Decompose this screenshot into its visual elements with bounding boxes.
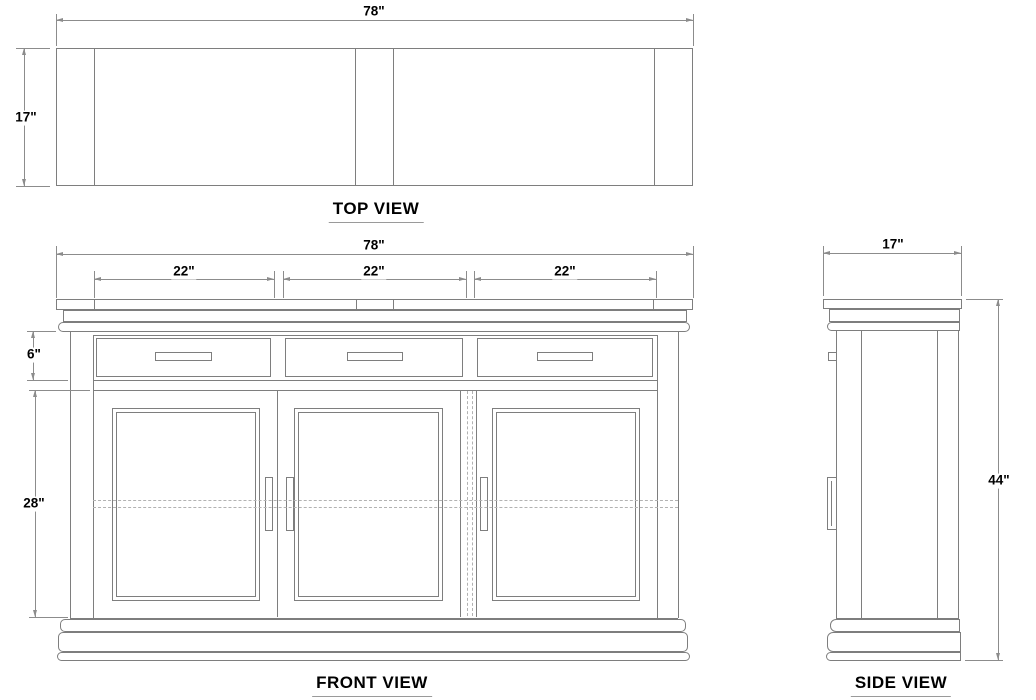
arrowhead-icon — [996, 653, 1000, 660]
front-base-step-2 — [58, 632, 688, 652]
body-right-edge — [678, 332, 679, 618]
dim-label-top-width: 78" — [361, 5, 386, 20]
dim-label-side-depth: 17" — [880, 238, 905, 253]
slab-joint-line — [356, 300, 357, 309]
side-back-edge — [958, 331, 959, 618]
extension-line — [693, 246, 694, 298]
extension-line — [474, 271, 475, 298]
side-base-step-1 — [830, 619, 960, 632]
slab-joint-line — [393, 300, 394, 309]
side-door-pull-detail — [831, 481, 832, 526]
dim-label-section-1: 22" — [171, 265, 196, 280]
arrowhead-icon — [56, 252, 63, 256]
drawer-band-bottom-line — [93, 380, 657, 381]
arrowhead-icon — [283, 277, 290, 281]
front-top-molding — [58, 322, 690, 332]
door-panel-2-inner — [298, 412, 439, 597]
extension-line — [693, 14, 694, 46]
drawer-pull-3 — [537, 352, 593, 361]
front-top-band — [63, 310, 687, 322]
front-top-slab — [56, 299, 693, 310]
top-joint-line — [654, 49, 655, 185]
door-2-right-edge — [460, 390, 461, 617]
side-top-slab — [823, 299, 962, 309]
arrowhead-icon — [996, 299, 1000, 306]
dim-label-section-3: 22" — [552, 265, 577, 280]
hidden-center-divider — [467, 391, 468, 616]
extension-line — [961, 246, 962, 296]
arrowhead-icon — [33, 390, 37, 397]
side-front-edge — [836, 331, 837, 618]
arrowhead-icon — [267, 277, 274, 281]
frame-left-line — [93, 335, 94, 618]
extension-line — [466, 271, 467, 298]
slab-joint-line — [653, 300, 654, 309]
arrowhead-icon — [31, 331, 35, 338]
extension-line — [29, 617, 68, 618]
hidden-center-divider — [472, 391, 473, 616]
technical-drawing-canvas: 78" 17" TOP VIEW 78" — [0, 0, 1036, 700]
drawer-pull-1 — [155, 352, 212, 361]
arrowhead-icon — [686, 18, 693, 22]
top-joint-line — [393, 49, 394, 185]
extension-line — [274, 271, 275, 298]
dim-label-side-height: 44" — [986, 474, 1011, 489]
dim-label-drawer-height: 6" — [25, 348, 43, 363]
door-panel-3-inner — [496, 412, 636, 597]
slab-joint-line — [94, 300, 95, 309]
door-pull-1 — [265, 477, 273, 531]
front-base-step-3 — [57, 652, 690, 661]
door-3-left-edge — [476, 390, 477, 617]
top-joint-line — [355, 49, 356, 185]
arrowhead-icon — [22, 48, 26, 55]
arrowhead-icon — [649, 277, 656, 281]
side-base-step-3 — [826, 652, 961, 661]
dim-label-section-2: 22" — [361, 265, 386, 280]
side-top-band — [829, 309, 960, 322]
side-drawer-pull — [828, 352, 837, 361]
side-top-molding — [827, 322, 960, 331]
extension-line — [965, 660, 1003, 661]
drawer-pull-2 — [347, 352, 403, 361]
arrowhead-icon — [823, 251, 830, 255]
dim-label-front-width: 78" — [361, 239, 386, 254]
dim-label-door-height: 28" — [21, 497, 46, 512]
drawer-band-top-line — [93, 335, 657, 336]
front-view-title: FRONT VIEW — [312, 673, 432, 697]
hidden-shelf-line — [93, 500, 678, 501]
arrowhead-icon — [94, 277, 101, 281]
dimension-line — [823, 253, 961, 254]
door-top-line — [93, 390, 657, 391]
arrowhead-icon — [31, 373, 35, 380]
arrowhead-icon — [33, 610, 37, 617]
arrowhead-icon — [22, 179, 26, 186]
door-panel-1-inner — [116, 412, 256, 597]
door-divider-line — [277, 390, 278, 617]
side-base-step-2 — [827, 632, 961, 652]
body-left-edge — [70, 332, 71, 618]
extension-line — [94, 271, 95, 298]
extension-line — [283, 271, 284, 298]
side-frame-line — [861, 331, 862, 618]
top-joint-line — [94, 49, 95, 185]
side-door-pull — [827, 477, 837, 530]
hidden-shelf-line — [93, 507, 678, 508]
frame-right-line — [657, 335, 658, 618]
extension-line — [656, 271, 657, 298]
arrowhead-icon — [459, 277, 466, 281]
arrowhead-icon — [954, 251, 961, 255]
door-pull-2 — [286, 477, 294, 531]
arrowhead-icon — [686, 252, 693, 256]
side-view-title: SIDE VIEW — [851, 673, 951, 697]
dim-label-top-depth: 17" — [13, 111, 38, 126]
extension-line — [27, 380, 68, 381]
arrowhead-icon — [474, 277, 481, 281]
door-pull-3 — [480, 477, 488, 531]
extension-line — [29, 390, 90, 391]
dimension-line — [56, 20, 693, 21]
extension-line — [16, 186, 50, 187]
side-frame-line — [937, 331, 938, 618]
front-base-step-1 — [60, 619, 686, 632]
arrowhead-icon — [56, 18, 63, 22]
top-view-title: TOP VIEW — [329, 199, 424, 223]
dimension-line — [56, 254, 693, 255]
cabinet-top-outline — [56, 48, 693, 186]
